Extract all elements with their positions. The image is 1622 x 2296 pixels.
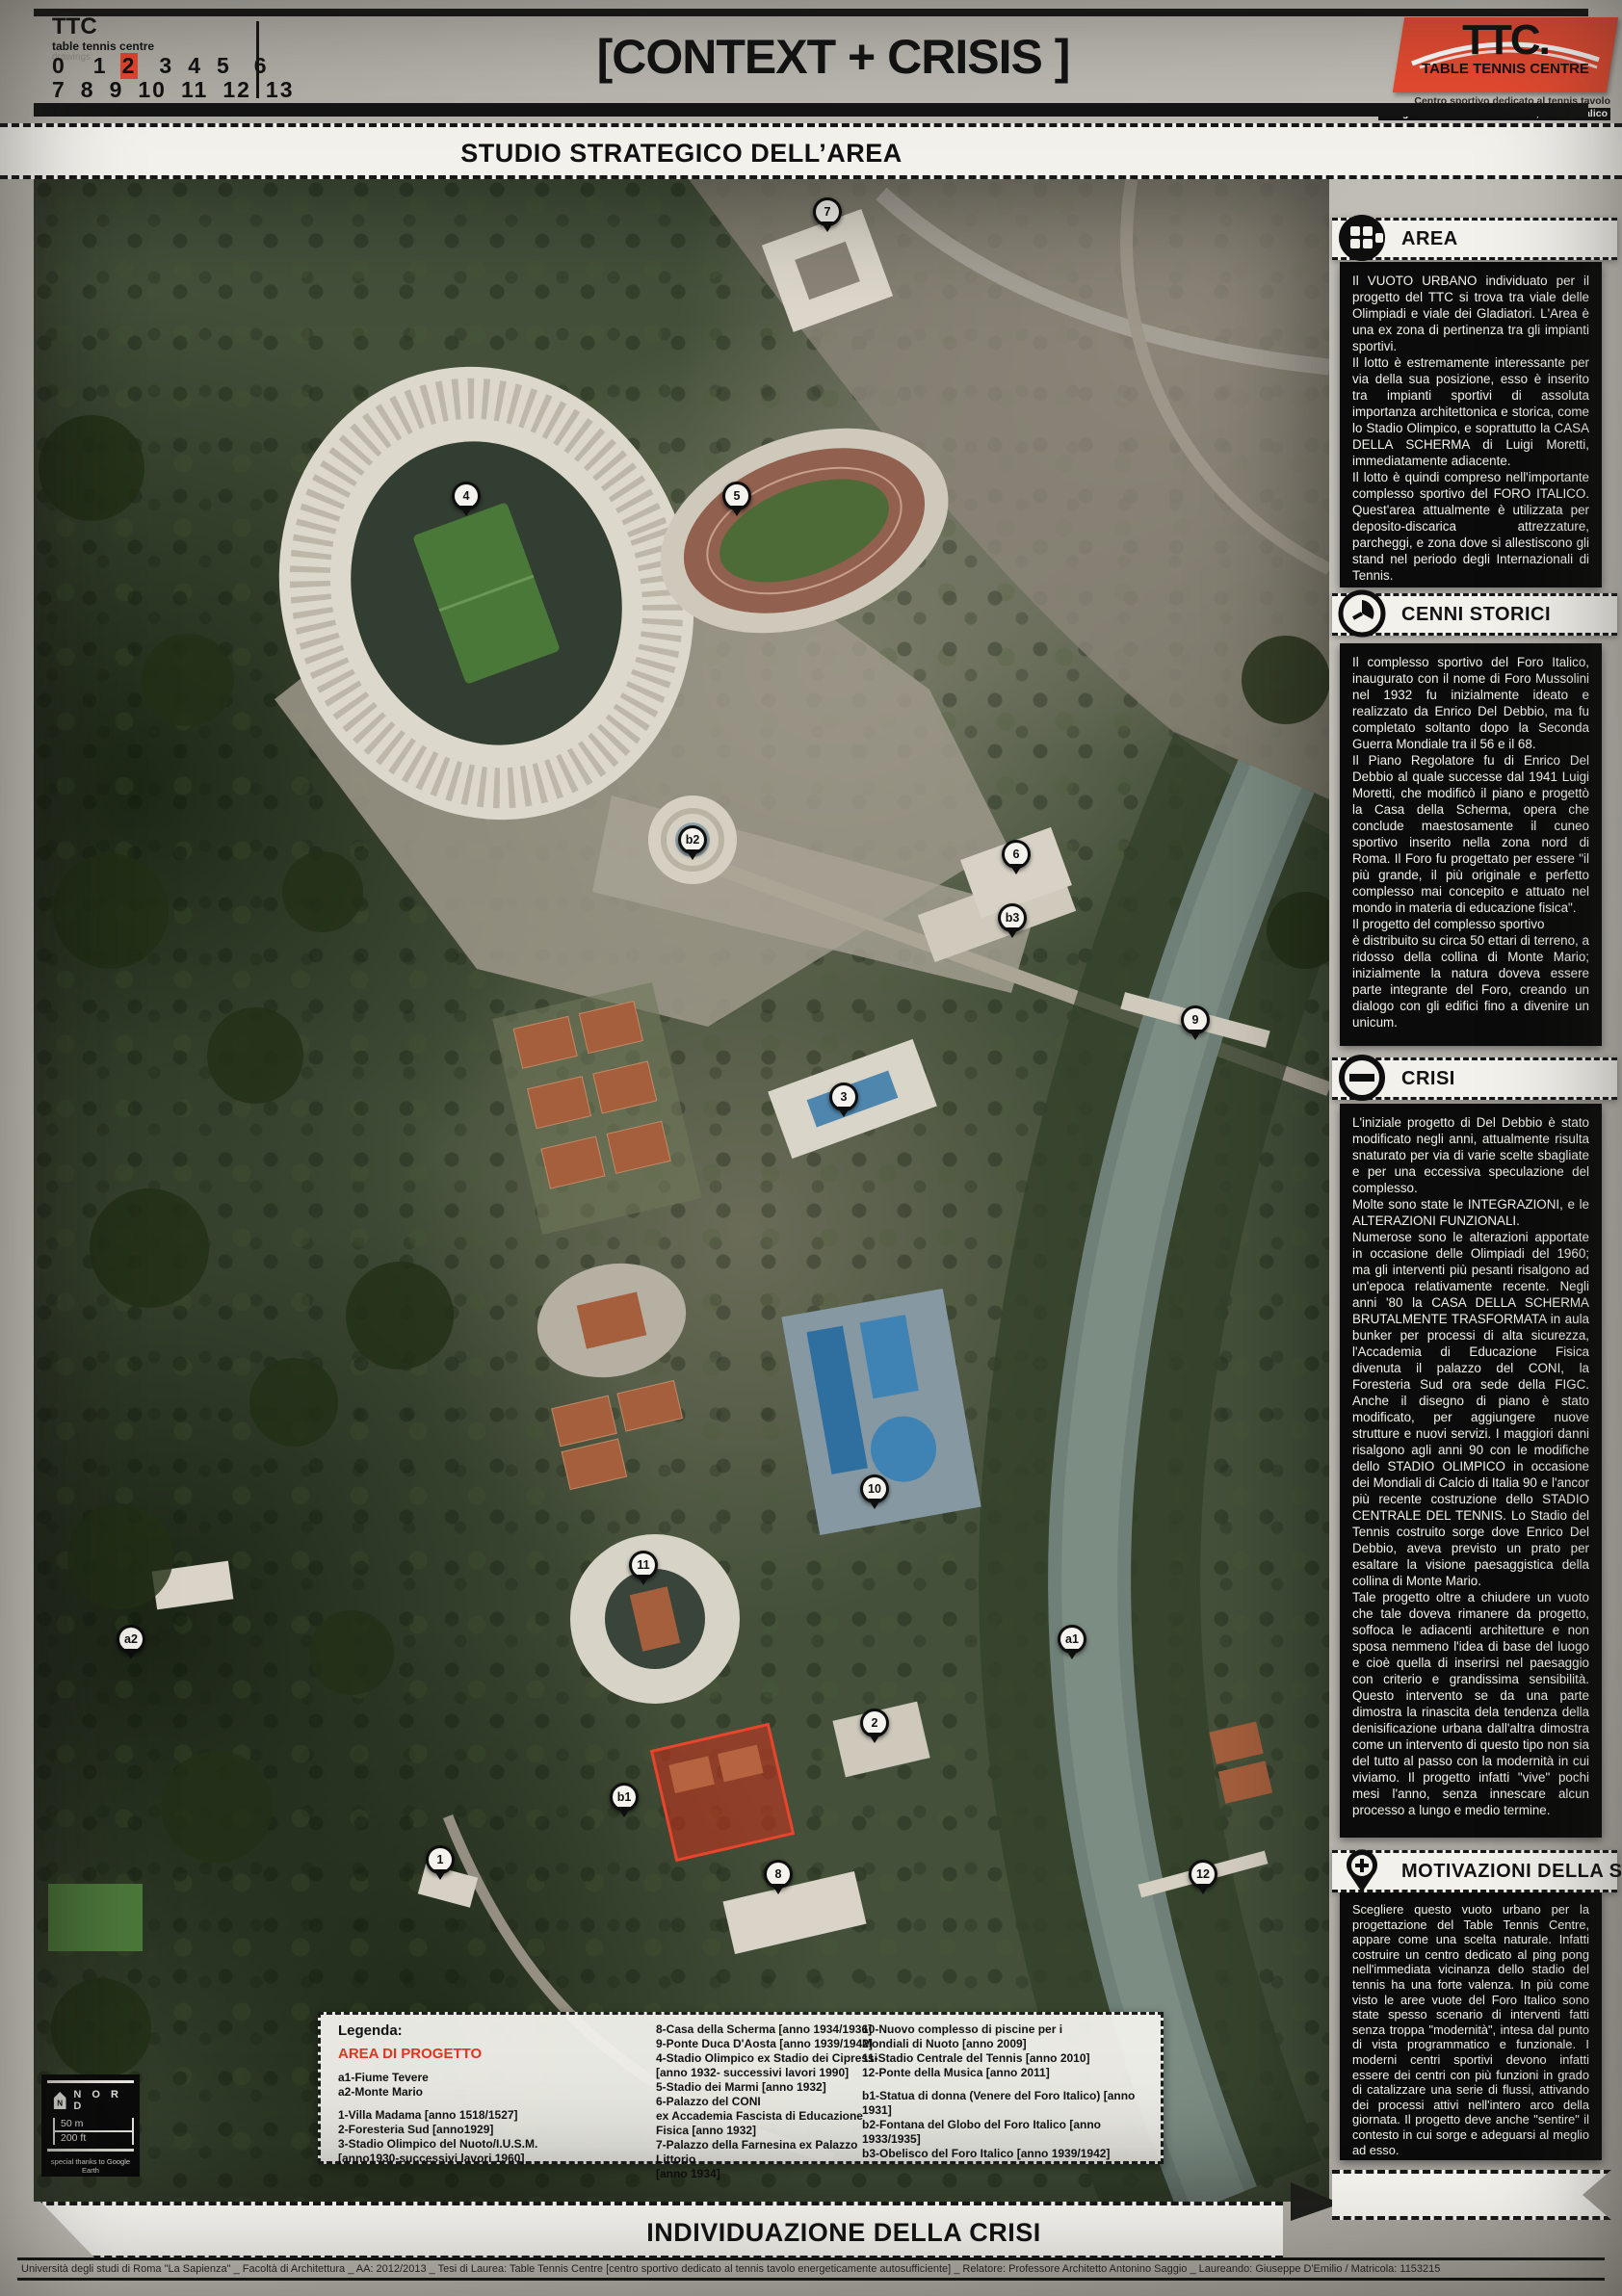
map-marker-label: a2 — [119, 1628, 143, 1651]
legend-column-2: 8-Casa della Scherma [anno 1934/1936]9-P… — [656, 2022, 892, 2181]
brand-subtitle: table tennis centre — [52, 40, 154, 52]
map-marker-label: 11 — [632, 1553, 655, 1577]
map-marker-label: 5 — [725, 484, 748, 508]
drawing-number-8[interactable]: 8 — [79, 77, 97, 103]
map-marker-label: a1 — [1060, 1628, 1084, 1651]
drawing-number-0[interactable]: 0 — [50, 53, 68, 79]
map-credit: special thanks to Google Earth — [47, 2157, 134, 2175]
north-label: N O R D — [73, 2089, 134, 2112]
map-marker-label: 3 — [832, 1085, 855, 1109]
map-marker-b3[interactable]: b3 — [998, 903, 1027, 932]
map-marker-6[interactable]: 6 — [1002, 840, 1031, 869]
legend-item: b3-Obelisco del Foro Italico [anno 1939/… — [862, 2147, 1151, 2161]
footer-rule-bottom — [17, 2278, 1605, 2281]
clock-icon — [1338, 589, 1386, 638]
logo-title: TTC. — [1399, 20, 1612, 61]
satellite-map[interactable]: 745b26b3931011a1a22b11812 N N O R D 50 m… — [34, 179, 1329, 2202]
map-marker-label: 6 — [1005, 843, 1028, 866]
minus-icon — [1338, 1054, 1386, 1102]
map-marker-label: 9 — [1184, 1008, 1207, 1031]
drawing-number-10[interactable]: 10 — [136, 77, 169, 103]
legend-item: b2-Fontana del Globo del Foro Italico [a… — [862, 2118, 1151, 2147]
svg-text:N: N — [57, 2099, 63, 2107]
legend-item: 6-Palazzo del CONI ex Accademia Fascista… — [656, 2095, 892, 2138]
legend-item: b1-Statua di donna (Venere del Foro Ital… — [862, 2089, 1151, 2118]
scale-bar: 50 m 200 ft — [53, 2118, 134, 2145]
drawing-number-13[interactable]: 13 — [264, 77, 297, 103]
bottom-banner-title: INDIVIDUAZIONE DELLA CRISI — [0, 2218, 1283, 2248]
map-marker-1[interactable]: 1 — [426, 1845, 455, 1874]
map-marker-2[interactable]: 2 — [860, 1709, 889, 1737]
legend-item: 7-Palazzo della Farnesina ex Palazzo Lit… — [656, 2138, 892, 2181]
legend-item: a2-Monte Mario — [338, 2085, 637, 2100]
section-body-motiv: Scegliere questo vuoto urbano per la pro… — [1340, 1892, 1602, 2160]
map-marker-b2[interactable]: b2 — [678, 825, 707, 854]
top-banner: STUDIO STRATEGICO DELL’AREA — [0, 123, 1622, 179]
map-legend: Legenda: AREA DI PROGETTO a1-Fiume Tever… — [318, 2012, 1164, 2164]
drawing-number-5[interactable]: 5 — [215, 53, 233, 79]
map-marker-10[interactable]: 10 — [860, 1474, 889, 1503]
section-title-motiv: MOTIVAZIONI DELLA SCELTA — [1401, 1861, 1622, 1883]
logo-subtitle: TABLE TENNIS CENTRE — [1399, 61, 1612, 77]
section-body-area: Il VUOTO URBANO individuato per il proge… — [1340, 262, 1602, 587]
map-marker-5[interactable]: 5 — [722, 482, 751, 510]
legend-item: 10-Nuovo complesso di piscine per i Mond… — [862, 2022, 1151, 2051]
legend-column-3: 10-Nuovo complesso di piscine per i Mond… — [862, 2022, 1151, 2161]
scale-meters: 50 m — [53, 2118, 134, 2132]
pin-plus-icon — [1338, 1846, 1386, 1894]
ribbon-tail — [1332, 2170, 1611, 2220]
header-divider — [256, 21, 259, 98]
section-body-crisi: L'iniziale progetto di Del Debbio è stat… — [1340, 1104, 1602, 1838]
drawing-number-9[interactable]: 9 — [108, 77, 126, 103]
brand-title: TTC — [52, 15, 154, 39]
north-scale-box: N N O R D 50 m 200 ft special thanks to … — [41, 2074, 140, 2177]
map-marker-11[interactable]: 11 — [629, 1551, 658, 1579]
drawing-number-1[interactable]: 1 — [92, 53, 110, 79]
ttc-logo: TTC. TABLE TENNIS CENTRE — [1393, 17, 1618, 92]
section-header-crisi: CRISI — [1332, 1057, 1617, 1100]
north-rule — [47, 2080, 134, 2083]
map-marker-12[interactable]: 12 — [1189, 1860, 1217, 1889]
section-title-area: AREA — [1401, 228, 1458, 250]
drawing-number-12[interactable]: 12 — [221, 77, 253, 103]
grid-icon — [1338, 214, 1386, 262]
legend-item: 5-Stadio dei Marmi [anno 1932] — [656, 2080, 892, 2095]
map-marker-9[interactable]: 9 — [1181, 1005, 1210, 1034]
footer: Università degli studi di Roma "La Sapie… — [0, 2257, 1622, 2281]
drawing-number-4[interactable]: 4 — [186, 53, 204, 79]
drawing-number-11[interactable]: 11 — [179, 77, 210, 103]
legend-item: 8-Casa della Scherma [anno 1934/1936] — [656, 2022, 892, 2037]
map-marker-a1[interactable]: a1 — [1058, 1625, 1086, 1654]
map-marker-label: b1 — [613, 1786, 636, 1809]
legend-item: 3-Stadio Olimpico del Nuoto/I.U.S.M. [an… — [338, 2137, 637, 2166]
legend-subtitle: AREA DI PROGETTO — [338, 2046, 482, 2062]
map-marker-4[interactable]: 4 — [452, 482, 481, 510]
footer-rule-top — [17, 2257, 1605, 2260]
bottom-banner: INDIVIDUAZIONE DELLA CRISI — [0, 2202, 1283, 2259]
map-marker-label: 12 — [1191, 1863, 1215, 1886]
top-banner-title: STUDIO STRATEGICO DELL’AREA — [34, 139, 1329, 169]
drawings-row-1: 0123456 — [50, 53, 281, 79]
section-title-storici: CENNI STORICI — [1401, 604, 1551, 626]
legend-item: 9-Ponte Duca D'Aosta [anno 1939/1942] — [656, 2037, 892, 2051]
drawing-number-6[interactable]: 6 — [252, 53, 271, 79]
drawing-number-2[interactable]: 2 — [120, 53, 139, 79]
footer-text: Università degli studi di Roma "La Sapie… — [21, 2263, 1601, 2275]
north-arrow-icon: N — [53, 2090, 66, 2111]
section-header-motiv: MOTIVAZIONI DELLA SCELTA — [1332, 1850, 1617, 1892]
map-marker-7[interactable]: 7 — [813, 197, 842, 226]
map-marker-label: 2 — [863, 1711, 886, 1735]
map-marker-label: b3 — [1001, 906, 1024, 929]
map-marker-8[interactable]: 8 — [764, 1860, 793, 1889]
map-marker-b1[interactable]: b1 — [610, 1783, 639, 1812]
legend-title: Legenda: — [338, 2022, 403, 2039]
section-header-area: AREA — [1332, 218, 1617, 260]
map-marker-a2[interactable]: a2 — [117, 1625, 145, 1654]
page-title: [CONTEXT + CRISIS ] — [462, 29, 1204, 85]
section-body-storici: Il complesso sportivo del Foro Italico, … — [1340, 643, 1602, 1046]
legend-item — [338, 2100, 637, 2108]
legend-item: 4-Stadio Olimpico ex Stadio dei Cipressi… — [656, 2051, 892, 2080]
map-marker-label: b2 — [681, 828, 704, 851]
drawings-row-2: 78910111213 — [50, 77, 307, 103]
drawing-number-3[interactable]: 3 — [157, 53, 175, 79]
poster-page: TTC table tennis centre drawings: 012345… — [0, 0, 1622, 2296]
map-marker-label: 7 — [816, 200, 839, 223]
header-bottom-rule — [34, 103, 1588, 117]
legend-item: 12-Ponte della Musica [anno 2011] — [862, 2066, 1151, 2080]
section-header-storici: CENNI STORICI — [1332, 593, 1617, 636]
north-rule-2 — [47, 2149, 134, 2152]
map-marker-label: 8 — [767, 1863, 790, 1886]
drawing-number-7[interactable]: 7 — [50, 77, 68, 103]
header-top-rule — [34, 9, 1588, 16]
map-marker-label: 1 — [429, 1848, 452, 1871]
map-marker-label: 10 — [863, 1477, 886, 1500]
legend-item — [862, 2080, 1151, 2089]
map-marker-label: 4 — [455, 484, 478, 508]
map-features — [34, 179, 1329, 2202]
legend-item: a1-Fiume Tevere — [338, 2071, 637, 2085]
section-title-crisi: CRISI — [1401, 1068, 1455, 1090]
legend-column-1: a1-Fiume Teverea2-Monte Mario1-Villa Mad… — [338, 2071, 637, 2166]
legend-item: 1-Villa Madama [anno 1518/1527] — [338, 2108, 637, 2123]
map-marker-3[interactable]: 3 — [829, 1083, 858, 1111]
legend-item: 2-Foresteria Sud [anno1929] — [338, 2123, 637, 2137]
scale-feet: 200 ft — [53, 2132, 134, 2145]
legend-item: 11-Stadio Centrale del Tennis [anno 2010… — [862, 2051, 1151, 2066]
